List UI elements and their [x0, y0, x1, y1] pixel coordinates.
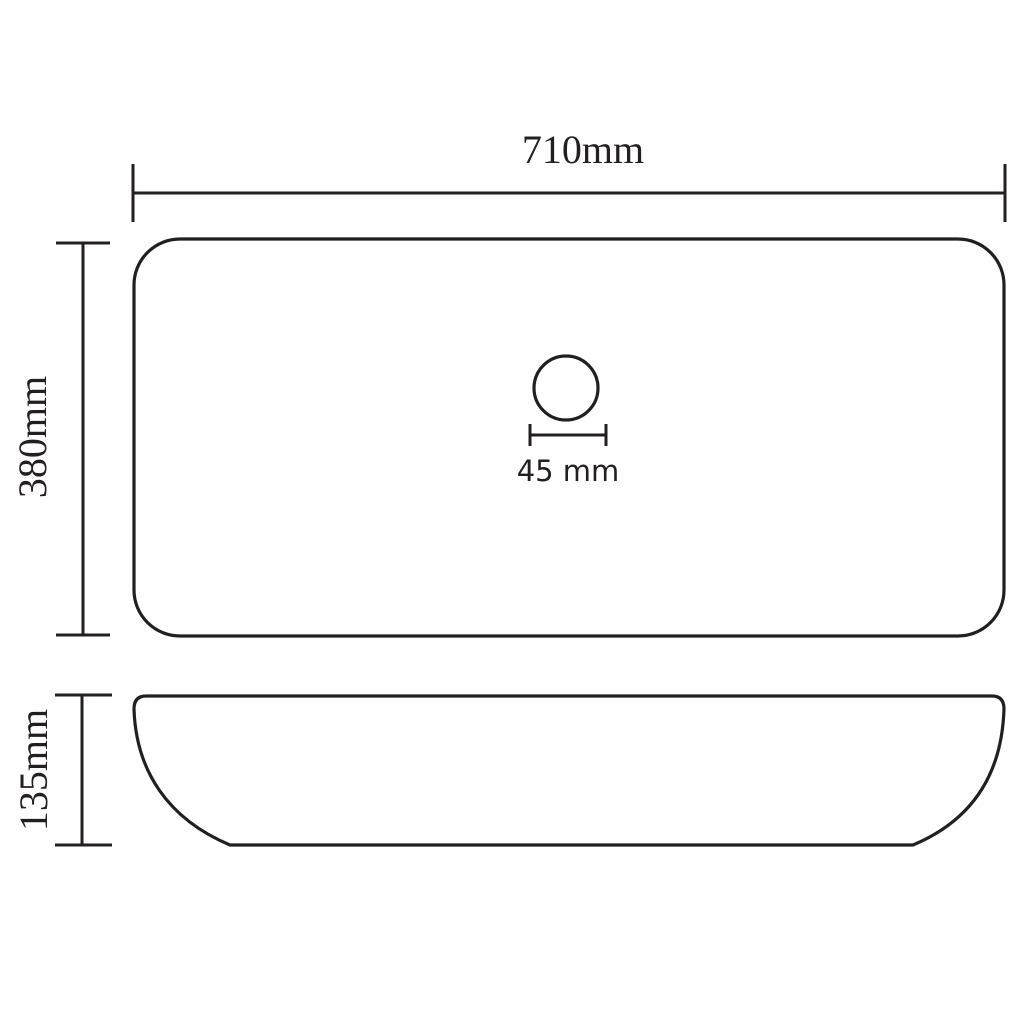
basin-top-view: 45 mm	[134, 239, 1004, 636]
height-dimension: 135mm	[11, 695, 112, 845]
basin-technical-drawing: 710mm 380mm 45 mm 135mm	[0, 0, 1024, 1024]
width-dimension-label: 710mm	[522, 127, 644, 172]
height-dimension-label: 135mm	[11, 709, 56, 831]
basin-side-view-outline	[134, 696, 1004, 845]
width-dimension: 710mm	[133, 127, 1005, 222]
drain-dimension: 45 mm	[517, 424, 620, 488]
depth-dimension-label: 380mm	[10, 376, 55, 498]
drawing-canvas: 710mm 380mm 45 mm 135mm	[0, 0, 1024, 1024]
depth-dimension: 380mm	[10, 243, 110, 635]
basin-side-view	[134, 696, 1004, 845]
basin-top-view-outline	[134, 239, 1004, 636]
drain-dimension-label: 45 mm	[517, 454, 620, 488]
drain-hole-circle	[534, 356, 598, 420]
